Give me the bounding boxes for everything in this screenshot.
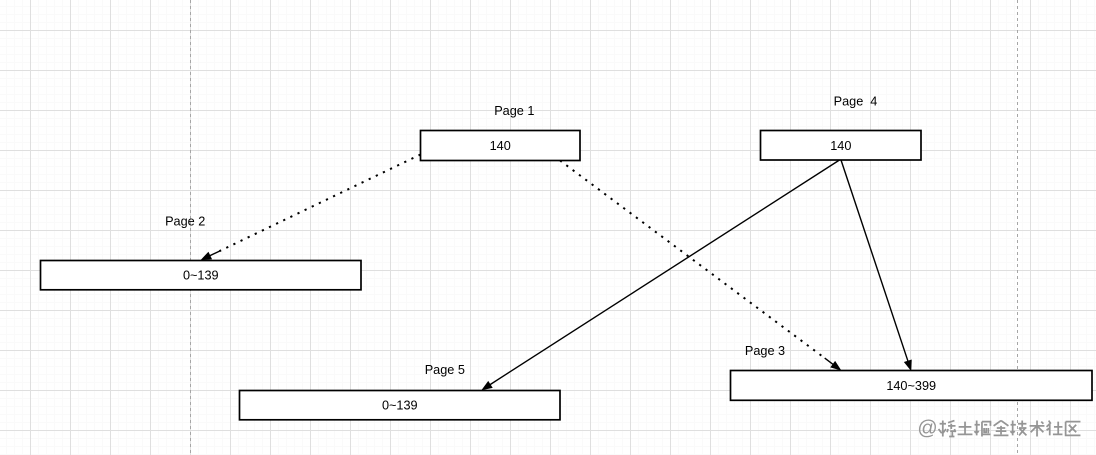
svg-text:Page 1: Page 1 [494, 104, 534, 118]
svg-text:@: @ [917, 418, 937, 440]
svg-text:Page 4: Page 4 [834, 95, 878, 109]
svg-text:Page 5: Page 5 [425, 363, 465, 377]
svg-text:140~399: 140~399 [886, 379, 936, 393]
svg-text:0~139: 0~139 [382, 399, 418, 413]
svg-text:140: 140 [490, 139, 511, 153]
svg-text:Page 3: Page 3 [745, 344, 785, 358]
svg-text:140: 140 [830, 139, 851, 153]
svg-text:Page 2: Page 2 [165, 214, 205, 228]
svg-text:0~139: 0~139 [183, 269, 219, 283]
